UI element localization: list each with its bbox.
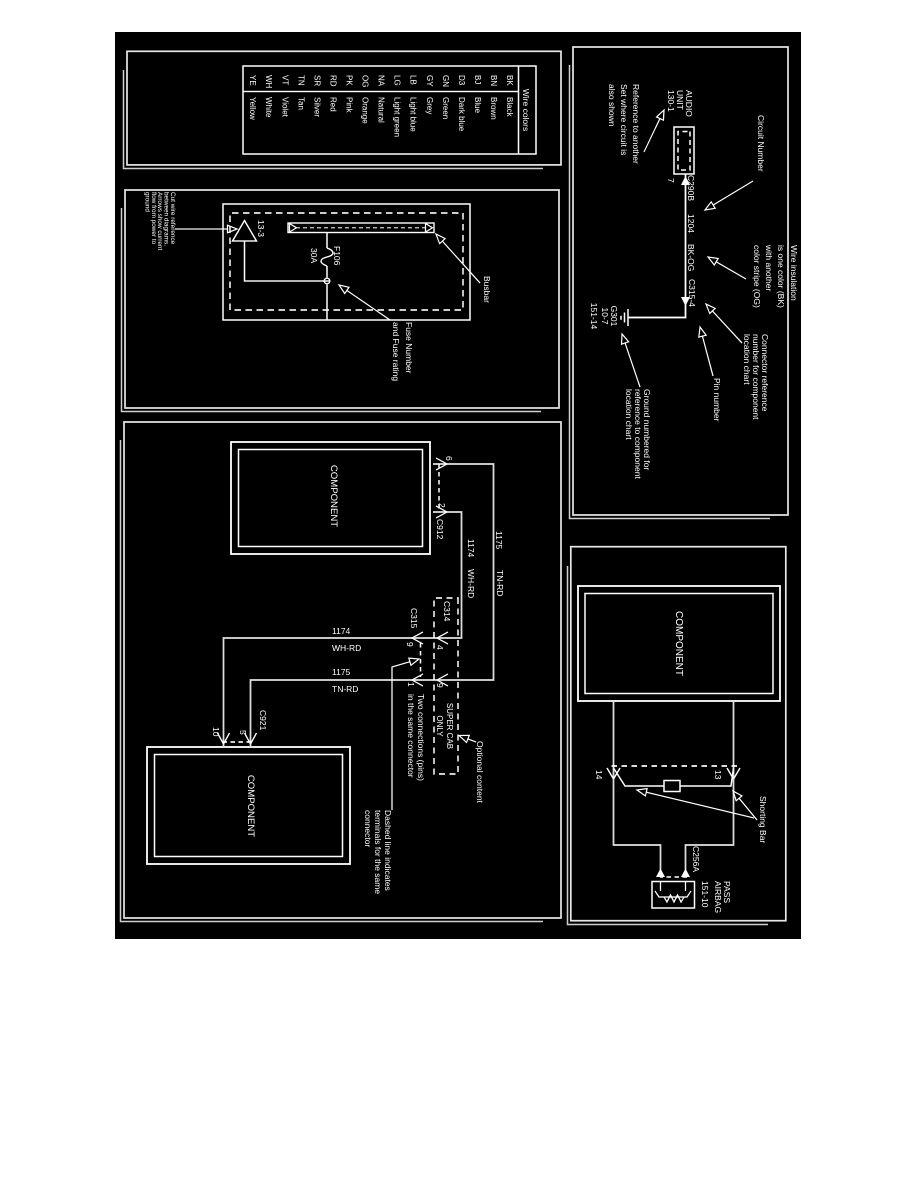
svg-text:Optional content: Optional content [475,741,485,804]
svg-text:Two connections (pins): Two connections (pins) [416,694,426,781]
svg-text:UNIT: UNIT [675,90,685,110]
svg-text:in the same connector: in the same connector [406,694,416,778]
svg-text:Busbar: Busbar [482,276,492,303]
svg-text:C256A: C256A [691,846,701,872]
svg-text:9: 9 [435,683,445,688]
svg-text:COMPONENT: COMPONENT [328,465,339,527]
svg-text:5: 5 [238,730,248,735]
svg-text:AIRBAG: AIRBAG [713,881,723,913]
svg-text:TN-RD: TN-RD [495,570,505,596]
svg-text:RD: RD [329,75,338,87]
svg-text:13: 13 [713,770,723,780]
svg-text:number for component: number for component [751,334,761,420]
svg-text:also shown: also shown [607,84,617,127]
svg-text:1: 1 [406,682,416,687]
svg-text:Natural: Natural [377,97,386,123]
svg-text:color stripe (OG): color stripe (OG) [752,245,762,308]
svg-text:Circuit Number: Circuit Number [756,115,766,172]
svg-text:TN-RD: TN-RD [332,684,358,694]
svg-text:flow from power to: flow from power to [150,192,157,245]
svg-text:C921: C921 [258,710,268,731]
svg-text:Violet: Violet [280,97,289,118]
svg-text:30A: 30A [309,248,319,263]
svg-text:9: 9 [405,642,415,647]
svg-text:connector: connector [363,810,373,847]
svg-text:is one color (BK): is one color (BK) [776,245,786,308]
svg-text:COMPONENT: COMPONENT [673,611,684,676]
svg-text:Yellow: Yellow [248,97,257,120]
svg-text:1174: 1174 [332,626,351,636]
svg-text:GY: GY [425,75,434,87]
svg-text:and Fuse rating: and Fuse rating [391,322,401,381]
svg-text:PK: PK [345,75,354,86]
svg-text:YE: YE [248,75,257,86]
svg-text:location chart: location chart [742,334,752,385]
svg-text:4: 4 [435,645,445,650]
svg-text:6: 6 [444,456,454,461]
svg-text:Reference to another: Reference to another [631,84,641,164]
svg-text:GN: GN [441,75,450,87]
svg-text:Pink: Pink [345,97,354,114]
svg-text:Fuse Number: Fuse Number [404,322,414,374]
svg-text:C315-4: C315-4 [687,279,697,307]
svg-text:Silver: Silver [312,97,321,117]
svg-text:Brown: Brown [489,97,498,120]
svg-text:C314: C314 [442,601,452,622]
svg-text:1204: 1204 [686,214,696,233]
svg-text:130-1: 130-1 [666,90,676,112]
svg-text:SUPER CAB: SUPER CAB [445,703,454,749]
svg-text:Orange: Orange [361,97,370,124]
svg-text:13-3: 13-3 [256,220,266,237]
svg-text:10: 10 [211,727,221,737]
svg-text:WH: WH [264,75,273,89]
svg-text:Black: Black [505,97,514,118]
svg-text:Red: Red [329,97,338,112]
svg-text:terminals for the same: terminals for the same [373,810,383,894]
svg-text:PASS: PASS [722,881,732,903]
svg-text:Shorting Bar: Shorting Bar [758,796,768,843]
svg-text:ground: ground [143,192,150,212]
svg-text:Wire colors: Wire colors [521,89,531,132]
svg-text:Cut wire reference: Cut wire reference [169,192,176,245]
svg-text:LB: LB [409,75,418,85]
svg-text:WH-RD: WH-RD [466,569,476,598]
svg-text:AUDIO: AUDIO [684,90,694,117]
svg-text:7: 7 [666,178,676,183]
svg-text:1175: 1175 [332,667,351,677]
svg-text:1174: 1174 [466,539,476,558]
svg-text:Dashed line indicates: Dashed line indicates [383,810,393,891]
svg-text:10-7: 10-7 [600,307,610,324]
svg-text:Connector reference: Connector reference [760,334,770,412]
svg-text:COMPONENT: COMPONENT [245,775,256,837]
svg-text:VT: VT [280,75,289,85]
svg-text:Pin number: Pin number [712,378,722,422]
svg-text:Grey: Grey [425,97,434,114]
svg-text:with another: with another [764,244,774,291]
svg-text:C290B: C290B [686,175,696,201]
svg-text:Wire insulation: Wire insulation [789,245,799,301]
svg-text:D3: D3 [457,75,466,86]
svg-text:Arrows show current: Arrows show current [156,192,163,250]
svg-text:Ground numbered for: Ground numbered for [642,389,652,470]
svg-text:Light green: Light green [393,97,402,137]
svg-text:NA: NA [377,75,386,87]
svg-text:White: White [264,97,273,118]
svg-text:location chart: location chart [624,389,634,440]
svg-text:OG: OG [361,75,370,87]
svg-text:reference to component: reference to component [633,389,643,479]
svg-text:14: 14 [594,770,604,780]
svg-text:SR: SR [312,75,321,86]
svg-text:Set where circuit is: Set where circuit is [619,84,629,155]
svg-text:F106: F106 [332,246,342,266]
svg-text:Tan: Tan [296,97,305,110]
svg-text:BK: BK [505,75,514,86]
svg-text:Dark blue: Dark blue [457,97,466,132]
svg-text:BJ: BJ [473,75,482,84]
svg-text:TN: TN [296,75,305,86]
svg-text:BN: BN [489,75,498,86]
svg-text:151-10: 151-10 [700,881,710,908]
svg-text:1175: 1175 [494,531,504,550]
svg-text:LG: LG [393,75,402,86]
svg-text:Light blue: Light blue [409,97,418,132]
svg-text:between diagrams.: between diagrams. [163,192,170,246]
svg-text:WH-RD: WH-RD [332,643,361,653]
svg-text:151-14: 151-14 [589,303,599,330]
svg-text:C315: C315 [409,608,419,629]
svg-text:G301: G301 [609,306,619,327]
svg-text:2: 2 [437,503,447,508]
svg-text:BK-OG: BK-OG [686,244,696,271]
svg-text:C912: C912 [435,519,445,540]
svg-text:ONLY: ONLY [435,715,444,737]
svg-text:Blue: Blue [473,97,482,114]
svg-text:Green: Green [441,97,450,119]
